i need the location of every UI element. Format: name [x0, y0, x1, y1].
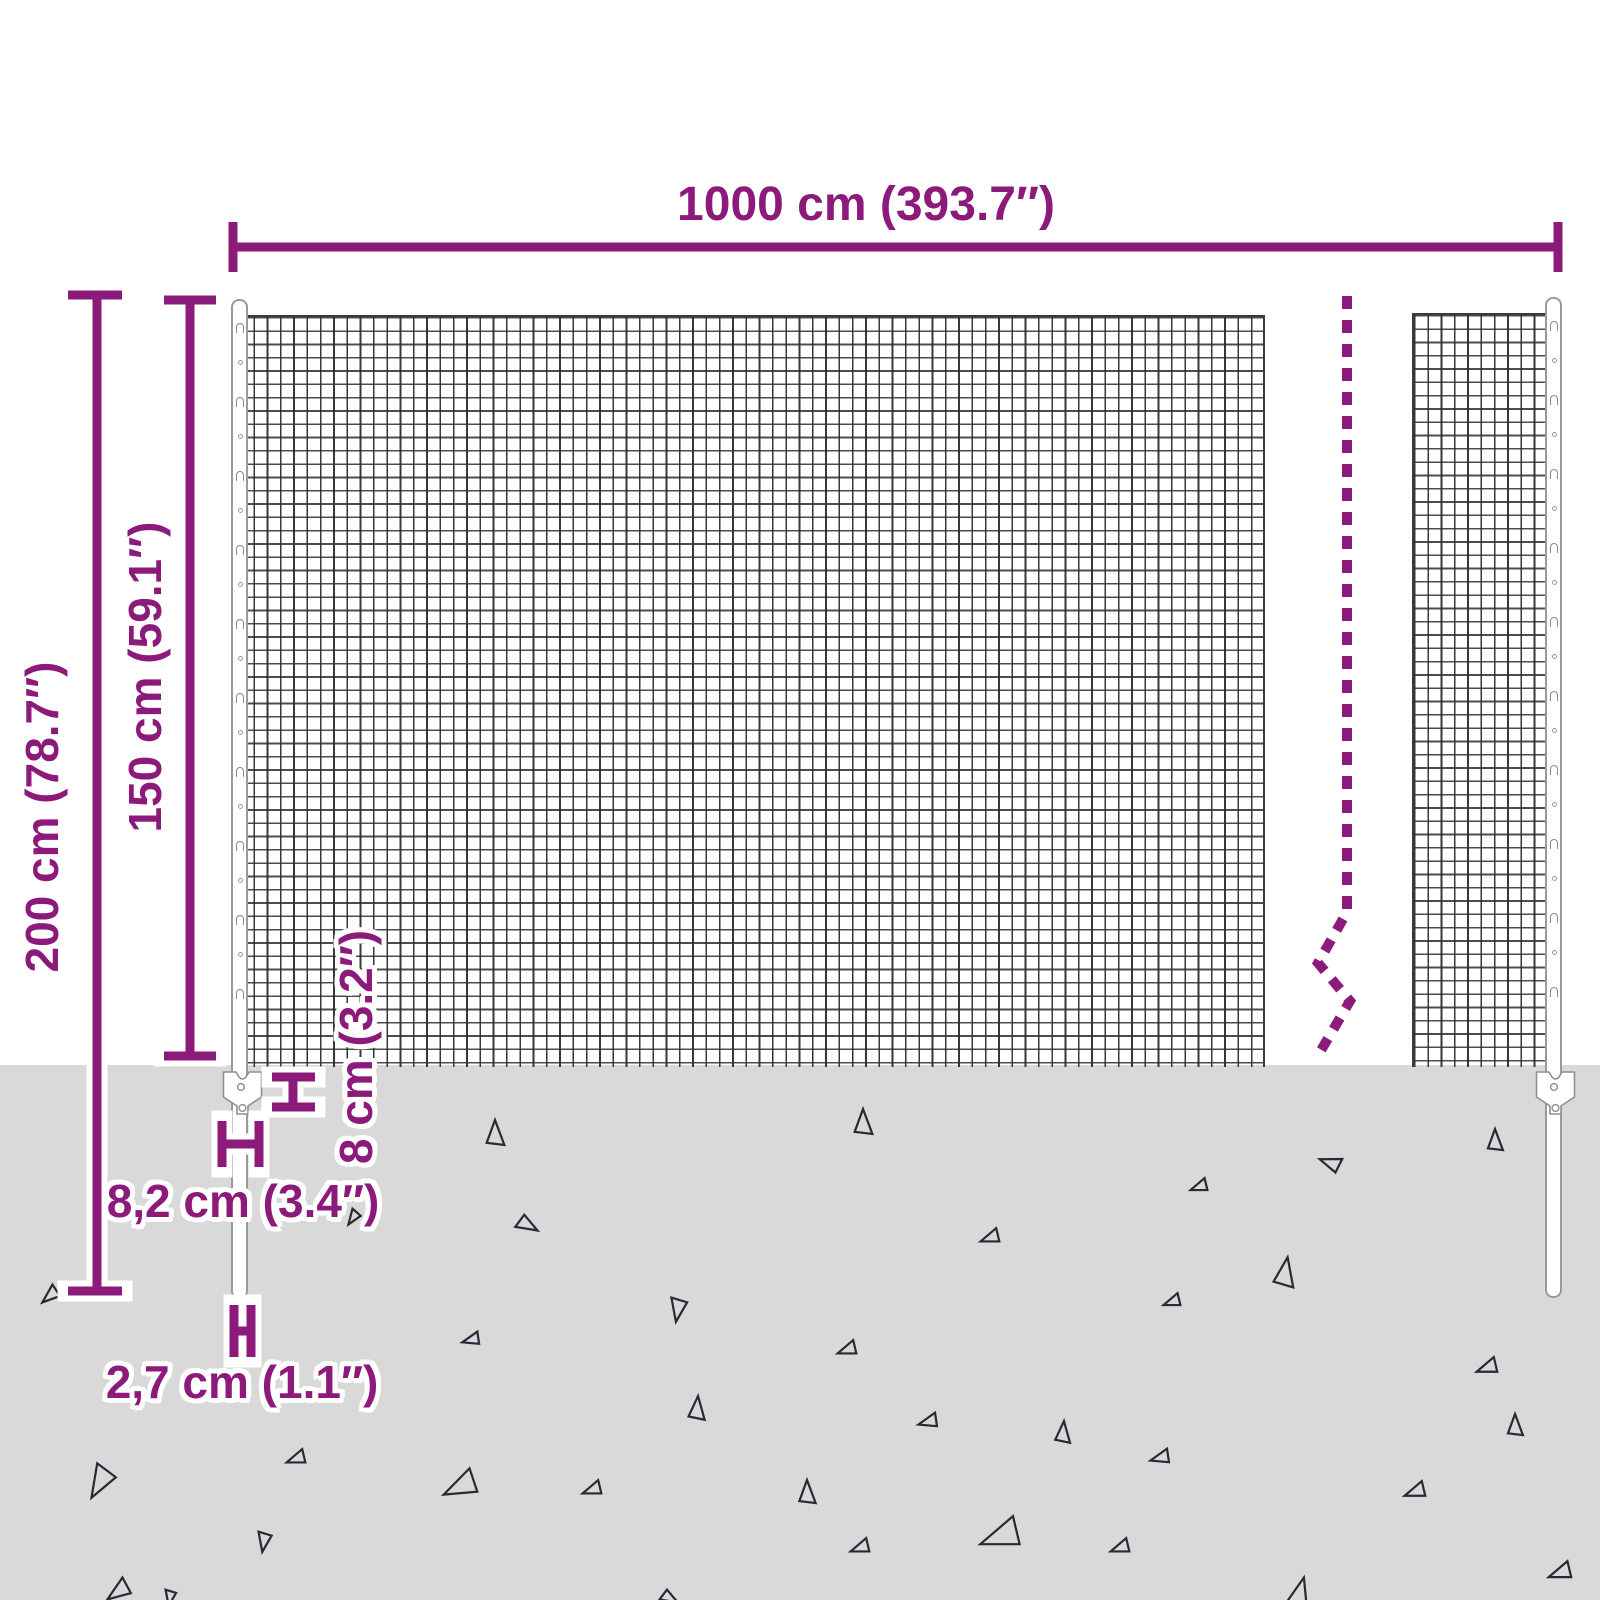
fence-post-left	[231, 299, 248, 1299]
post-hook-icon	[1550, 765, 1558, 775]
post-hook-icon	[1550, 395, 1558, 405]
post-hook-icon	[1550, 617, 1558, 627]
ground-anchor-right	[1535, 1070, 1576, 1116]
post-hook-icon	[1550, 543, 1558, 553]
post-hook-icon	[236, 989, 244, 999]
post-hook-icon	[238, 878, 243, 883]
post-hook-icon	[1552, 950, 1557, 955]
post-hook-icon	[238, 582, 243, 587]
post-hook-icon	[236, 841, 244, 851]
post-hook-icon	[236, 471, 244, 481]
total-height-dimension-label: 200 cm (78.7″)	[19, 662, 65, 973]
anchor-width-dimension-label: 8,2 cm (3.4″)	[107, 1178, 380, 1224]
post-hook-icon	[1552, 506, 1557, 511]
fence-dimension-diagram: 1000 cm (393.7″) 200 cm (78.7″) 150 cm (…	[0, 0, 1600, 1600]
post-hook-icon	[238, 730, 243, 735]
post-hook-icon	[238, 508, 243, 513]
post-hook-icon	[236, 397, 244, 407]
post-hook-icon	[1552, 432, 1557, 437]
post-hook-icon	[236, 619, 244, 629]
post-hook-icon	[1552, 728, 1557, 733]
post-hook-icon	[1550, 469, 1558, 479]
post-hook-icon	[236, 323, 244, 333]
post-hook-icon	[1550, 913, 1558, 923]
anchor-height-dimension-label: 8 cm (3.2″)	[333, 930, 379, 1164]
post-hook-icon	[1550, 691, 1558, 701]
ground-anchor-left	[222, 1070, 263, 1116]
spike-width-dimension-label: 2,7 cm (1.1″)	[106, 1359, 379, 1405]
post-hook-icon	[238, 804, 243, 809]
post-hook-icon	[238, 360, 243, 365]
fence-post-right	[1545, 297, 1562, 1298]
post-hook-icon	[1550, 987, 1558, 997]
post-hook-icon	[1552, 876, 1557, 881]
mesh-panel-main	[240, 315, 1265, 1067]
post-hook-icon	[236, 767, 244, 777]
mesh-panel-right	[1412, 313, 1554, 1067]
post-hook-icon	[1550, 839, 1558, 849]
post-hook-icon	[1552, 654, 1557, 659]
post-hook-icon	[1552, 580, 1557, 585]
post-hook-icon	[238, 952, 243, 957]
width-dimension-label: 1000 cm (393.7″)	[677, 181, 1055, 229]
post-hook-icon	[236, 915, 244, 925]
post-hook-icon	[238, 656, 243, 661]
post-hook-icon	[1552, 358, 1557, 363]
dash-path	[1318, 296, 1350, 1052]
post-hook-icon	[1550, 321, 1558, 331]
post-hook-icon	[1552, 802, 1557, 807]
post-hook-icon	[238, 434, 243, 439]
mesh-height-dimension-label: 150 cm (59.1″)	[122, 522, 168, 833]
post-hook-icon	[236, 545, 244, 555]
post-hook-icon	[236, 693, 244, 703]
